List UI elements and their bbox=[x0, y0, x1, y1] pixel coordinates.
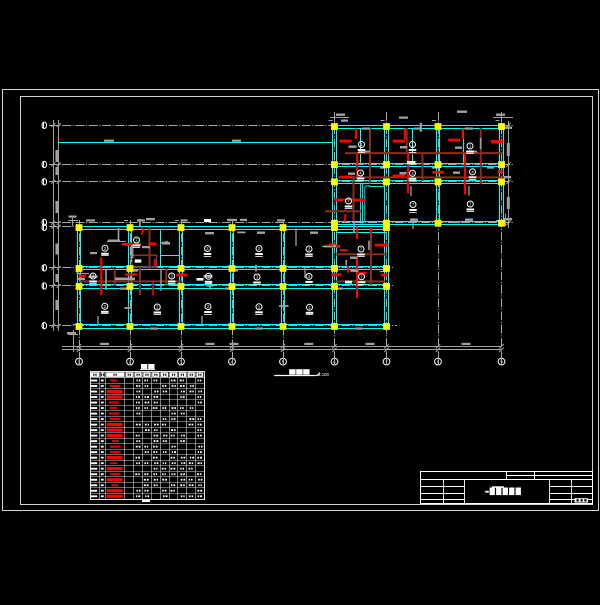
svg-text:1:100: 1:100 bbox=[318, 372, 329, 377]
